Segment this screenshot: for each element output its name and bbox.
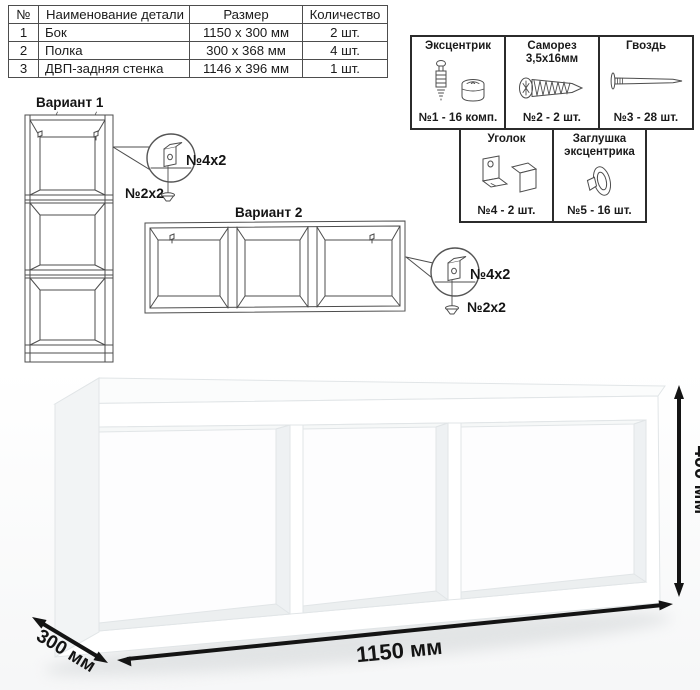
part-size: 300 х 368 мм (190, 42, 303, 60)
part-num: 3 (9, 60, 39, 78)
parts-table-header-row: № Наименование детали Размер Количество (9, 6, 388, 24)
corner-bracket-icon (471, 152, 543, 196)
nail-icon (606, 69, 686, 93)
cam-lock-icon (421, 58, 495, 104)
hardware-cell-screw: Саморез 3,5х16мм №2 - 2 шт. (504, 35, 600, 130)
screw-qty-label: №2х2 (467, 299, 506, 315)
shelf-3d-render: 1150 мм 400 мм 300 мм (0, 368, 700, 690)
part-size: 1150 х 300 мм (190, 24, 303, 42)
height-dimension-label: 400 мм (690, 446, 700, 515)
bracket-qty-label: №4х2 (186, 153, 226, 169)
part-name: ДВП-задняя стенка (39, 60, 190, 78)
part-name: Бок (39, 24, 190, 42)
header-size: Размер (190, 6, 303, 24)
screw-qty-label: №2х2 (125, 185, 164, 201)
header-name: Наименование детали (39, 6, 190, 24)
table-row: 2 Полка 300 х 368 мм 4 шт. (9, 42, 388, 60)
hardware-title: Эксцентрик (425, 40, 491, 53)
hardware-title: Заглушка эксцентрика (555, 133, 644, 159)
assembly-instruction-sheet: № Наименование детали Размер Количество … (0, 0, 700, 690)
hardware-count: №1 - 16 комп. (419, 110, 498, 124)
hardware-cell-cap: Заглушка эксцентрика №5 - 16 шт. (552, 128, 647, 223)
hardware-count: №5 - 16 шт. (567, 203, 631, 217)
callout-screw-icon (446, 306, 459, 314)
parts-table: № Наименование детали Размер Количество … (8, 5, 388, 78)
hardware-title: Гвоздь (626, 40, 666, 53)
part-qty: 2 шт. (303, 24, 388, 42)
table-row: 1 Бок 1150 х 300 мм 2 шт. (9, 24, 388, 42)
variant2-drawing: №4х2 №2х2 (140, 200, 560, 335)
screw-icon (515, 70, 589, 106)
hardware-cell-cam-lock: Эксцентрик №1 - 16 комп. (410, 35, 506, 130)
hardware-count: №3 - 28 шт. (614, 110, 678, 124)
table-row: 3 ДВП-задняя стенка 1146 х 396 мм 1 шт. (9, 60, 388, 78)
hardware-box-row1: Эксцентрик №1 - 16 комп. Саморез 3,5 (410, 35, 694, 130)
part-name: Полка (39, 42, 190, 60)
part-num: 1 (9, 24, 39, 42)
hardware-count: №2 - 2 шт. (523, 110, 581, 124)
hardware-cell-nail: Гвоздь №3 - 28 шт. (598, 35, 694, 130)
part-size: 1146 х 396 мм (190, 60, 303, 78)
bracket-qty-label: №4х2 (470, 267, 510, 283)
hardware-title: Уголок (487, 133, 525, 146)
hardware-title: Саморез 3,5х16мм (507, 40, 597, 66)
part-num: 2 (9, 42, 39, 60)
part-qty: 4 шт. (303, 42, 388, 60)
header-qty: Количество (303, 6, 388, 24)
header-num: № (9, 6, 39, 24)
part-qty: 1 шт. (303, 60, 388, 78)
cam-cap-icon (580, 160, 620, 202)
